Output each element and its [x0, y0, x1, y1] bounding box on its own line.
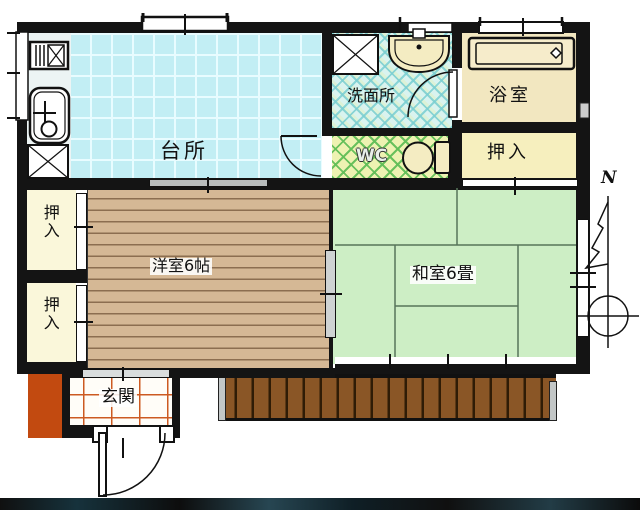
veranda-deck — [220, 374, 556, 421]
wall-left — [17, 33, 27, 373]
label-western-room: 洋室6帖 — [150, 258, 212, 275]
japanese-right-window — [577, 219, 589, 337]
closet-top-right-fusuma — [462, 179, 578, 187]
label-japanese-room: 和室6畳 — [410, 266, 476, 284]
deck-left-edge — [218, 377, 226, 421]
entrance-door-gap — [107, 427, 160, 438]
label-closet-top-right: 押入 — [487, 144, 529, 163]
bath-door-gap — [452, 68, 462, 120]
deck-right-edge — [549, 381, 557, 421]
western-japanese-sliding-door — [325, 250, 336, 338]
label-closet-left-lower: 押入 — [41, 296, 58, 332]
kitchen-western-sliding-door — [149, 179, 268, 187]
label-kitchen: 台所 — [160, 140, 208, 162]
wall-japanese-bottom — [335, 364, 590, 374]
kitchen-door-gap — [322, 134, 332, 180]
wall-closet-separator — [17, 270, 87, 283]
wall-bath-closet — [452, 122, 590, 133]
genkan-western-sliding-door — [82, 369, 170, 378]
label-north: N — [601, 170, 617, 188]
room-wc — [332, 136, 448, 178]
label-washroom: 洗面所 — [347, 88, 395, 105]
room-washroom — [332, 33, 452, 128]
floor-plan: 台所 洗面所 浴室 WC 押入 押入 押入 洋室6帖 和室6畳 玄関 N — [0, 0, 640, 510]
photo-bottom-edge — [0, 498, 640, 510]
label-closet-left-upper: 押入 — [41, 204, 58, 240]
label-entrance: 玄関 — [99, 389, 137, 407]
label-wc: WC — [356, 148, 387, 166]
wall-washroom-wc — [322, 128, 452, 136]
entrance-porch — [28, 374, 62, 438]
wall-top — [17, 22, 590, 33]
closet-left-lower-fusuma — [76, 285, 87, 362]
closet-left-upper-fusuma — [76, 193, 87, 270]
kitchen-counter-strip — [27, 33, 71, 178]
room-bathroom — [462, 33, 576, 122]
label-bathroom: 浴室 — [489, 87, 531, 106]
room-western — [87, 188, 330, 368]
